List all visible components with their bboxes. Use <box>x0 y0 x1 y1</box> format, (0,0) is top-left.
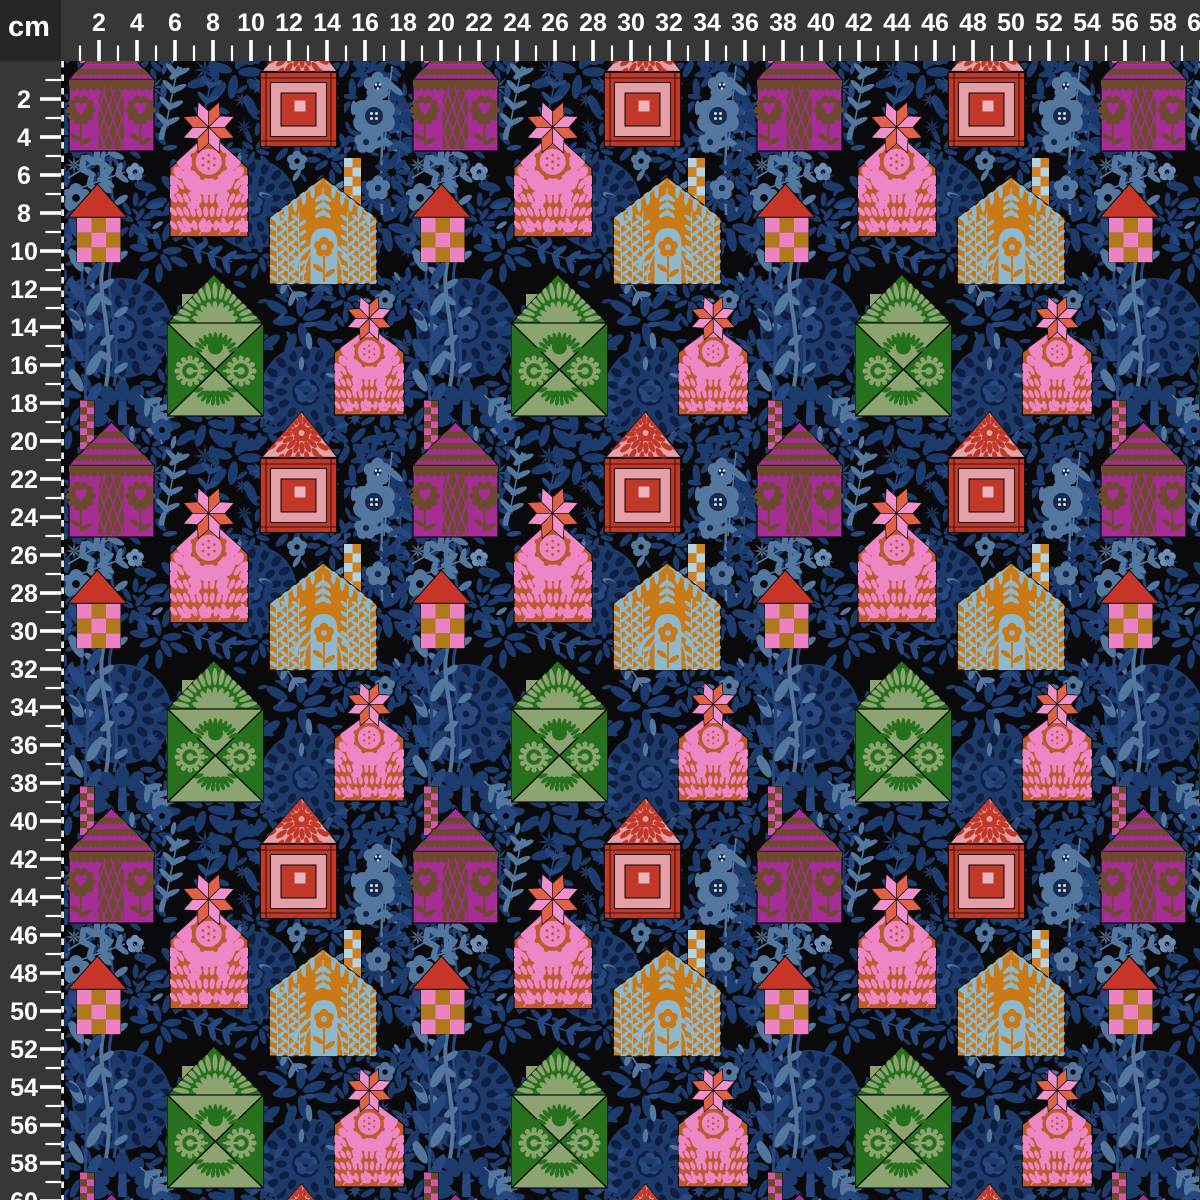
svg-text:4: 4 <box>130 9 144 37</box>
svg-text:60: 60 <box>1187 9 1200 37</box>
svg-text:34: 34 <box>10 694 38 722</box>
svg-text:28: 28 <box>10 580 38 608</box>
svg-text:46: 46 <box>921 9 949 37</box>
svg-text:50: 50 <box>10 998 38 1026</box>
svg-text:12: 12 <box>10 276 38 304</box>
svg-text:40: 40 <box>807 9 835 37</box>
svg-text:56: 56 <box>1111 9 1139 37</box>
svg-text:38: 38 <box>769 9 797 37</box>
svg-text:18: 18 <box>389 9 417 37</box>
svg-text:12: 12 <box>275 9 303 37</box>
svg-text:6: 6 <box>17 162 31 190</box>
svg-text:28: 28 <box>579 9 607 37</box>
svg-text:10: 10 <box>237 9 265 37</box>
svg-text:24: 24 <box>10 504 38 532</box>
svg-text:36: 36 <box>10 732 38 760</box>
svg-text:2: 2 <box>17 86 31 114</box>
svg-text:40: 40 <box>10 808 38 836</box>
svg-text:56: 56 <box>10 1112 38 1140</box>
svg-text:6: 6 <box>168 9 182 37</box>
svg-text:46: 46 <box>10 922 38 950</box>
svg-text:14: 14 <box>313 9 341 37</box>
svg-text:38: 38 <box>10 770 38 798</box>
svg-text:8: 8 <box>206 9 220 37</box>
svg-text:cm: cm <box>8 11 50 43</box>
svg-text:14: 14 <box>10 314 38 342</box>
svg-text:22: 22 <box>465 9 493 37</box>
svg-text:32: 32 <box>10 656 38 684</box>
svg-text:42: 42 <box>10 846 38 874</box>
svg-text:58: 58 <box>10 1150 38 1178</box>
svg-text:8: 8 <box>17 200 31 228</box>
svg-text:20: 20 <box>10 428 38 456</box>
svg-text:52: 52 <box>1035 9 1063 37</box>
svg-text:58: 58 <box>1149 9 1177 37</box>
svg-text:50: 50 <box>997 9 1025 37</box>
svg-text:44: 44 <box>883 9 911 37</box>
svg-text:36: 36 <box>731 9 759 37</box>
svg-text:34: 34 <box>693 9 721 37</box>
svg-text:10: 10 <box>10 238 38 266</box>
svg-text:32: 32 <box>655 9 683 37</box>
svg-text:30: 30 <box>10 618 38 646</box>
svg-text:54: 54 <box>10 1074 38 1102</box>
svg-text:52: 52 <box>10 1036 38 1064</box>
svg-text:30: 30 <box>617 9 645 37</box>
svg-text:48: 48 <box>10 960 38 988</box>
svg-text:60: 60 <box>10 1188 38 1200</box>
svg-text:16: 16 <box>351 9 379 37</box>
svg-text:16: 16 <box>10 352 38 380</box>
svg-text:24: 24 <box>503 9 531 37</box>
svg-text:18: 18 <box>10 390 38 418</box>
svg-text:20: 20 <box>427 9 455 37</box>
svg-text:48: 48 <box>959 9 987 37</box>
svg-text:42: 42 <box>845 9 873 37</box>
svg-text:54: 54 <box>1073 9 1101 37</box>
svg-text:44: 44 <box>10 884 38 912</box>
svg-text:2: 2 <box>92 9 106 37</box>
svg-text:22: 22 <box>10 466 38 494</box>
svg-text:26: 26 <box>541 9 569 37</box>
svg-text:26: 26 <box>10 542 38 570</box>
svg-text:4: 4 <box>17 124 31 152</box>
